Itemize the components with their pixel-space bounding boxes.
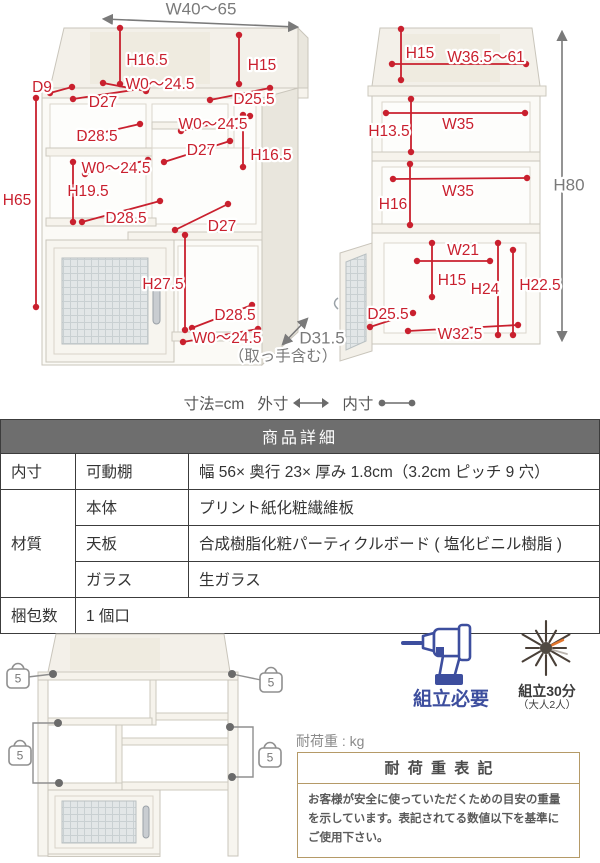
dimension-label: H16.5	[250, 147, 291, 164]
table-row: 天板 合成樹脂化粧パーティクルボード ( 塩化ビニル樹脂 )	[1, 526, 600, 562]
assembly-people-label: （大人2人）	[505, 697, 589, 712]
dimension-endpoint-dot	[495, 332, 501, 338]
dimension-label: D25.5	[233, 91, 274, 108]
dimension-endpoint-dot	[180, 339, 186, 345]
weight-5kg-icon: 5	[9, 741, 31, 766]
dimension-endpoint-dot	[410, 310, 416, 316]
dimension-endpoint-dot	[389, 61, 395, 67]
dimension-endpoint-dot	[367, 324, 373, 330]
dimension-endpoint-dot	[510, 247, 516, 253]
dimension-endpoint-dot	[408, 96, 414, 102]
table-row: ガラス 生ガラス	[1, 562, 600, 598]
assembly-required-label: 組立必要	[399, 684, 503, 711]
dimension-label: H15	[438, 272, 466, 289]
inner-dotline-icon	[378, 397, 416, 409]
spec-value: 生ガラス	[189, 562, 600, 598]
weight-value: 5	[267, 751, 274, 765]
legend-outer-label: 外寸	[257, 392, 288, 414]
load-points-drawing: 5555	[0, 618, 300, 863]
dimension-endpoint-dot	[33, 304, 39, 310]
dimension-endpoint-dot	[398, 77, 404, 83]
spec-category: 内寸	[1, 454, 76, 490]
dimension-endpoint-dot	[495, 240, 501, 246]
product-detail-page: W40〜65 D31.5 （取っ手含む） H80 H16.5H15D9W0〜24…	[0, 0, 600, 863]
dimension-label: D27	[89, 94, 117, 111]
dimension-endpoint-dot	[398, 26, 404, 32]
load-notice-text: お客様が安全に使っていただくための目安の重量を示しています。表記されてる数値以下…	[298, 784, 579, 857]
dimension-label: W0〜24.5	[126, 76, 195, 93]
dimension-label: D9	[32, 79, 52, 96]
dimension-endpoint-dot	[522, 110, 528, 116]
dimension-endpoint-dot	[236, 32, 242, 38]
dimension-endpoint-dot	[510, 332, 516, 338]
load-notice-title: 耐荷重表記	[298, 753, 579, 784]
dimension-endpoint-dot	[383, 110, 389, 116]
clock-spoke	[550, 654, 557, 665]
clock-spoke	[523, 635, 540, 645]
weight-5kg-icon: 5	[7, 664, 29, 689]
dimension-endpoint-dot	[227, 138, 233, 144]
dimension-endpoint-dot	[390, 176, 396, 182]
load-capacity-caption: 耐荷重 : kg	[296, 731, 364, 751]
legend-inner-label: 内寸	[342, 392, 373, 414]
dimension-endpoint-dot	[161, 159, 167, 165]
weight-5kg-icon: 5	[259, 743, 281, 768]
assembly-clock-icon	[512, 612, 582, 682]
dimension-label: W21	[447, 242, 479, 259]
dimension-label: D27	[187, 142, 215, 159]
dimension-label: W35	[442, 116, 474, 133]
dimension-endpoint-dot	[429, 240, 435, 246]
dimension-endpoint-dot	[515, 322, 521, 328]
dimension-label: D28.5	[105, 210, 146, 227]
weight-5kg-icon: 5	[260, 668, 282, 693]
dimension-label: W0〜24.5	[82, 160, 151, 177]
outer-depth-label: D31.5	[299, 328, 344, 347]
dimension-label: D28.5	[76, 128, 117, 145]
shelf-front-right-drawing	[335, 28, 547, 361]
spec-sub: 本体	[76, 490, 189, 526]
table-title: 商品詳細	[1, 420, 600, 454]
dimension-endpoint-dot	[524, 175, 530, 181]
dimension-endpoint-dot	[172, 227, 178, 233]
dimension-label: H27.5	[142, 276, 183, 293]
spec-value: プリント紙化粧繊維板	[189, 490, 600, 526]
product-spec-table: 商品詳細 内寸 可動棚 幅 56× 奥行 23× 厚み 1.8cm（3.2cm …	[0, 419, 600, 634]
spec-category: 材質	[1, 490, 76, 598]
dimension-endpoint-dot	[70, 219, 76, 225]
dimension-label: H16	[379, 196, 407, 213]
dimension-endpoint-dot	[117, 25, 123, 31]
clock-spoke	[523, 652, 540, 662]
dimension-endpoint-dot	[225, 201, 231, 207]
dimension-label: W36.5〜61	[447, 49, 525, 66]
dimension-label: D27	[208, 218, 236, 235]
dimension-diagrams: W40〜65 D31.5 （取っ手含む） H80 H16.5H15D9W0〜24…	[0, 0, 600, 391]
dimension-label: D25.5	[367, 306, 408, 323]
drill-icon	[398, 616, 478, 686]
dimension-endpoint-dot	[407, 222, 413, 228]
dimension-label: D28.5	[214, 307, 255, 324]
dimension-endpoint-dot	[100, 80, 106, 86]
dimension-label: H65	[3, 192, 31, 209]
outer-width-label: W40〜65	[166, 0, 237, 18]
clock-spoke	[536, 631, 543, 642]
outer-depth-note: （取っ手含む）	[229, 347, 338, 365]
table-row: 材質 本体 プリント紙化粧繊維板	[1, 490, 600, 526]
dimension-label: W0〜24.5	[193, 330, 262, 347]
dimension-endpoint-dot	[70, 96, 76, 102]
dimension-label: W32.5	[438, 326, 483, 343]
dimension-endpoint-dot	[414, 258, 420, 264]
dimension-endpoint-dot	[157, 198, 163, 204]
dimension-endpoint-dot	[247, 113, 253, 119]
dimension-label: H19.5	[67, 183, 108, 200]
dimension-label: H16.5	[126, 52, 167, 69]
dimension-endpoint-dot	[137, 121, 143, 127]
table-row: 内寸 可動棚 幅 56× 奥行 23× 厚み 1.8cm（3.2cm ピッチ 9…	[1, 454, 600, 490]
dimension-endpoint-dot	[429, 294, 435, 300]
dimension-label: H13.5	[368, 123, 409, 140]
outer-height-label: H80	[553, 175, 584, 194]
dimension-endpoint-dot	[240, 164, 246, 170]
dimension-label: H22.5	[519, 277, 560, 294]
dimension-endpoint-dot	[405, 328, 411, 334]
dimension-line	[393, 178, 527, 179]
spec-sub: ガラス	[76, 562, 189, 598]
dimension-legend: 寸法=cm 外寸 内寸	[0, 391, 600, 415]
outer-arrow-icon	[293, 397, 329, 409]
dimension-label: H15	[248, 57, 276, 74]
dimension-endpoint-dot	[182, 327, 188, 333]
dimension-endpoint-dot	[182, 232, 188, 238]
dimension-label: H15	[406, 45, 434, 62]
spec-sub: 天板	[76, 526, 189, 562]
dimension-label: H24	[471, 281, 500, 298]
load-notice-box: 耐荷重表記 お客様が安全に使っていただくための目安の重量を示しています。表記され…	[297, 752, 580, 858]
dimension-label: W35	[442, 183, 474, 200]
dimension-endpoint-dot	[207, 97, 213, 103]
door-handle-icon	[335, 298, 339, 309]
spec-value: 幅 56× 奥行 23× 厚み 1.8cm（3.2cm ピッチ 9 穴）	[189, 454, 600, 490]
dimension-endpoint-dot	[70, 159, 76, 165]
weight-value: 5	[268, 676, 275, 690]
dimension-endpoint-dot	[407, 161, 413, 167]
dimension-endpoint-dot	[69, 84, 75, 90]
dimension-endpoint-dot	[408, 149, 414, 155]
clock-spoke	[536, 654, 543, 665]
dimension-endpoint-dot	[236, 81, 242, 87]
weight-value: 5	[17, 749, 24, 763]
dimension-endpoint-dot	[487, 258, 493, 264]
spec-sub: 可動棚	[76, 454, 189, 490]
dimension-label: W0〜24.5	[179, 116, 248, 133]
legend-unit: 寸法=cm	[184, 392, 245, 414]
spec-value: 合成樹脂化粧パーティクルボード ( 塩化ビニル樹脂 )	[189, 526, 600, 562]
weight-value: 5	[15, 672, 22, 686]
clock-spoke	[550, 631, 557, 642]
dimension-endpoint-dot	[79, 219, 85, 225]
